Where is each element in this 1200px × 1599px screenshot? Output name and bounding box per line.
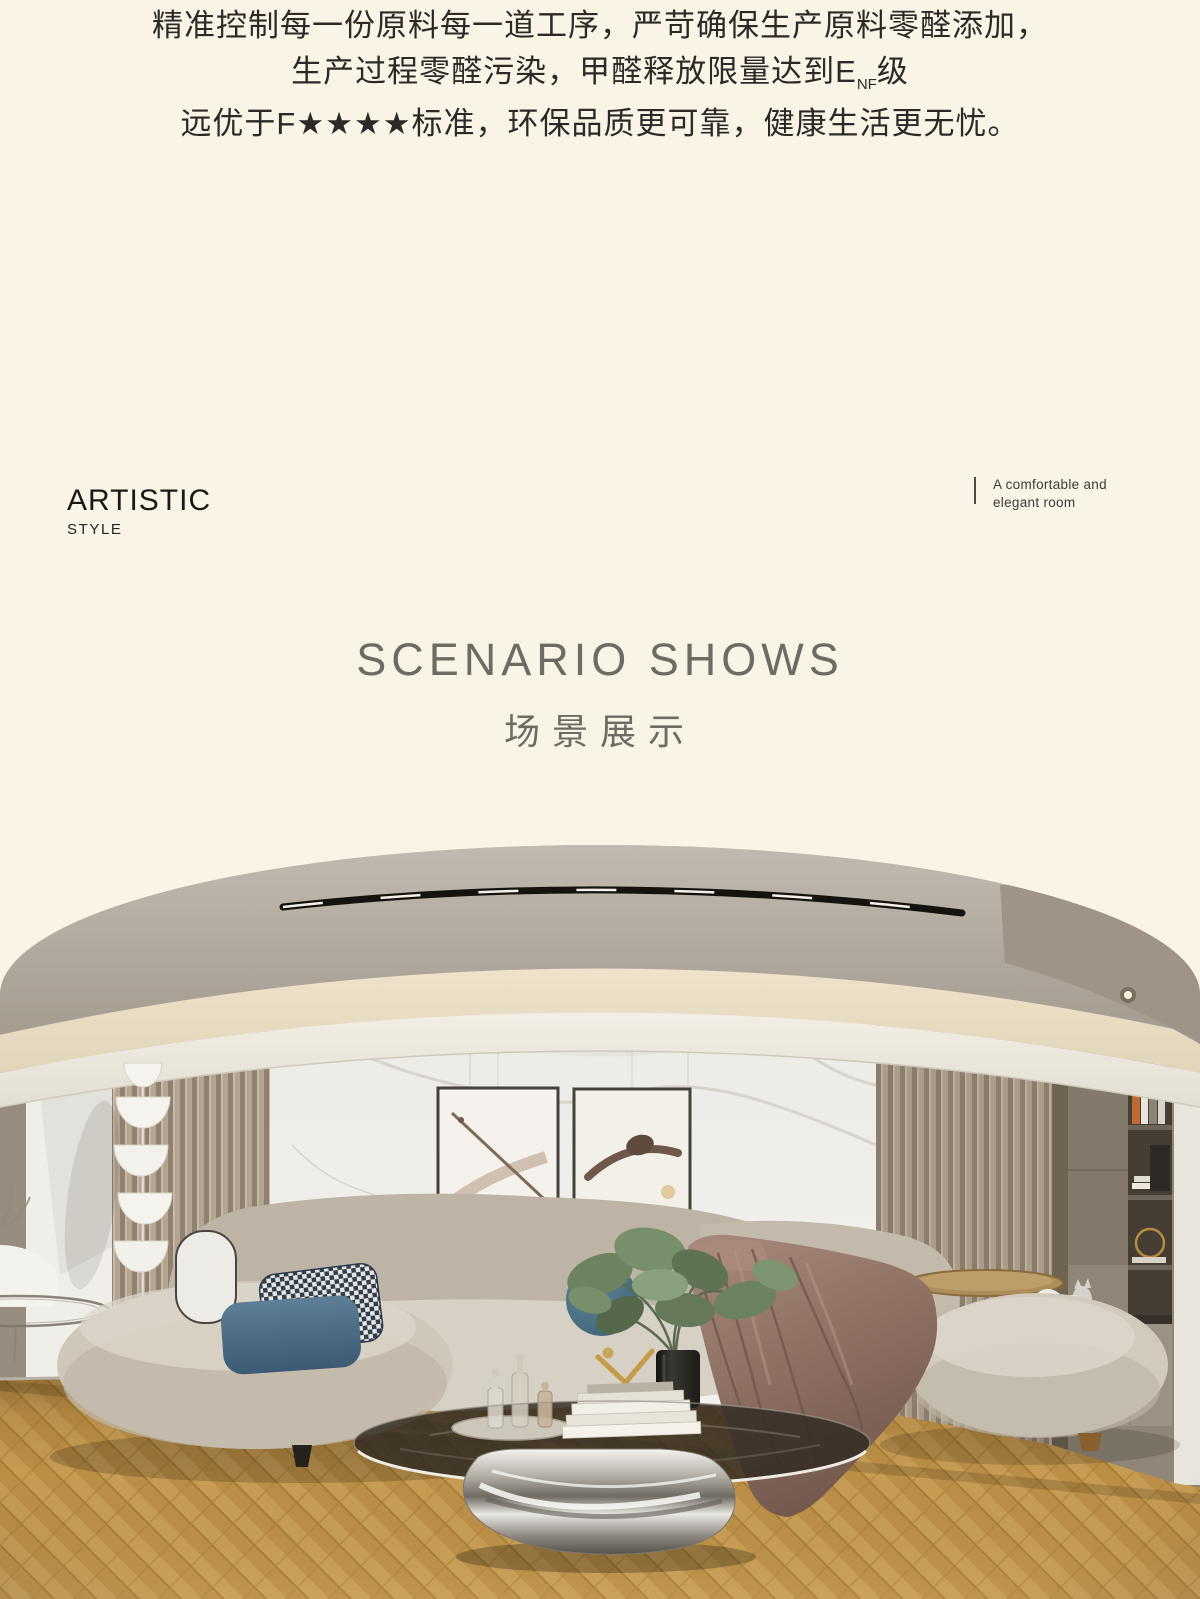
side-note-line-1: A comfortable and [993,476,1107,494]
vignette-overlay [0,845,1200,1599]
artistic-subtitle: STYLE [67,521,211,538]
intro-line-2-post: 级 [877,54,909,89]
intro-copy: 精准控制每一份原料每一道工序，严苛确保生产原料零醛添加， 生产过程零醛污染，甲醛… [0,0,1200,147]
side-note-line-2: elegant room [993,494,1107,512]
scenario-photo-arch: Modern beige living room: curved boucle … [0,845,1200,1599]
side-note-text: A comfortable and elegant room [993,476,1107,511]
section-title-en: SCENARIO SHOWS [0,634,1200,686]
enf-subscript: NF [857,76,877,93]
intro-line-2-pre: 生产过程零醛污染，甲醛释放限量达到E [291,54,857,89]
intro-line-2: 生产过程零醛污染，甲醛释放限量达到ENF级 [0,49,1200,101]
section-heading: SCENARIO SHOWS 场景展示 [0,634,1200,755]
intro-line-1: 精准控制每一份原料每一道工序，严苛确保生产原料零醛添加， [0,3,1200,49]
intro-line-3: 远优于F★★★★标准，环保品质更可靠，健康生活更无忧。 [0,101,1200,147]
vertical-divider [974,477,976,504]
page: 精准控制每一份原料每一道工序，严苛确保生产原料零醛添加， 生产过程零醛污染，甲醛… [0,0,1200,1599]
artistic-title: ARTISTIC [67,484,211,518]
section-title-cn: 场景展示 [0,703,1200,755]
side-note: A comfortable and elegant room [974,476,1107,511]
scenario-photo: Modern beige living room: curved boucle … [0,845,1200,1599]
artistic-style-block: ARTISTIC STYLE [67,484,211,538]
